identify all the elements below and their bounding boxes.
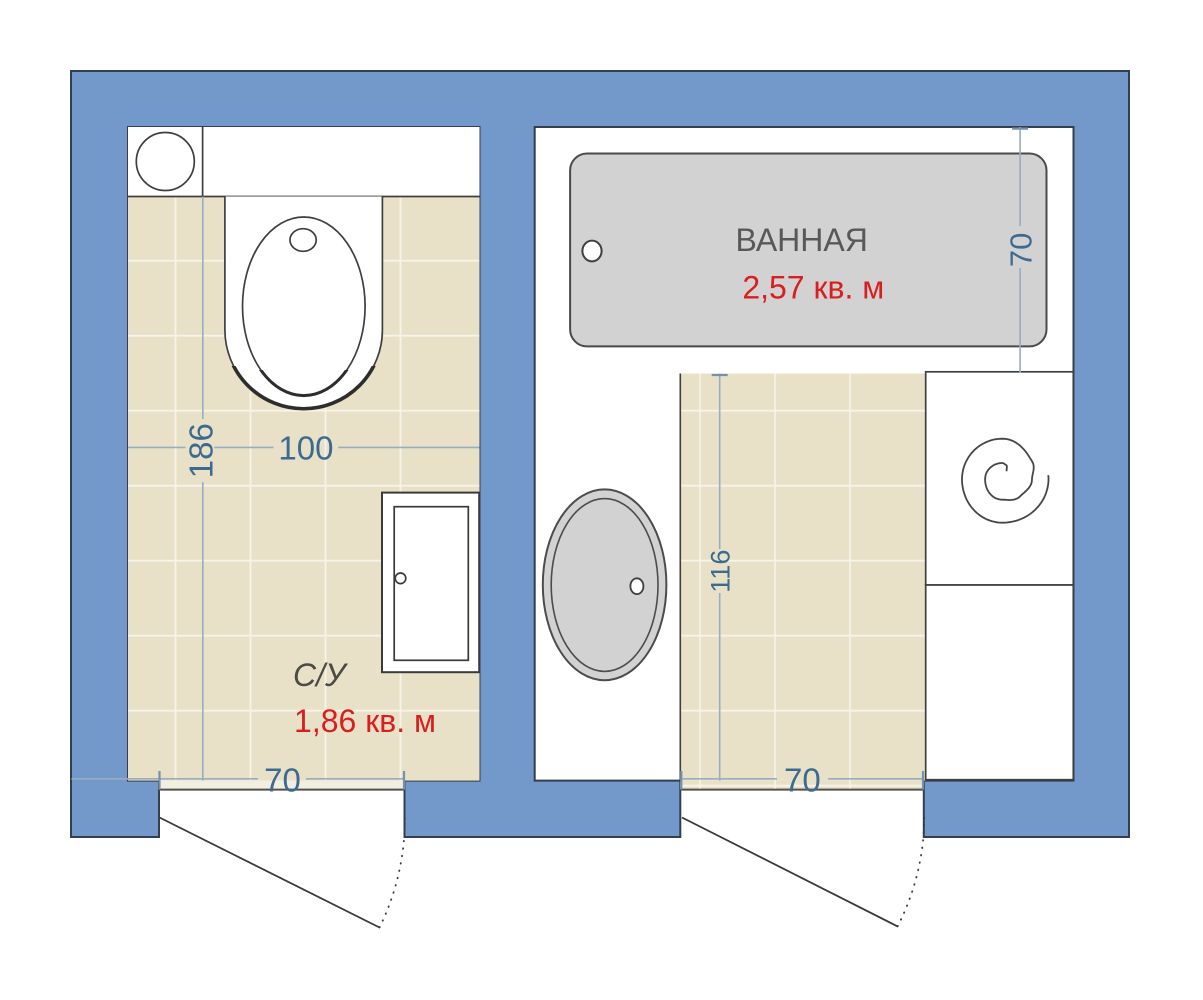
svg-text:ВАННАЯ: ВАННАЯ [736,222,868,258]
svg-text:2,57 кв. м: 2,57 кв. м [742,269,884,305]
svg-text:186: 186 [182,423,219,478]
svg-text:С/У: С/У [293,657,349,693]
svg-text:1,86 кв. м: 1,86 кв. м [294,703,436,739]
svg-text:100: 100 [278,429,333,466]
svg-text:70: 70 [784,761,821,798]
svg-text:70: 70 [1003,233,1038,267]
svg-text:70: 70 [264,761,301,798]
svg-text:116: 116 [706,550,736,593]
